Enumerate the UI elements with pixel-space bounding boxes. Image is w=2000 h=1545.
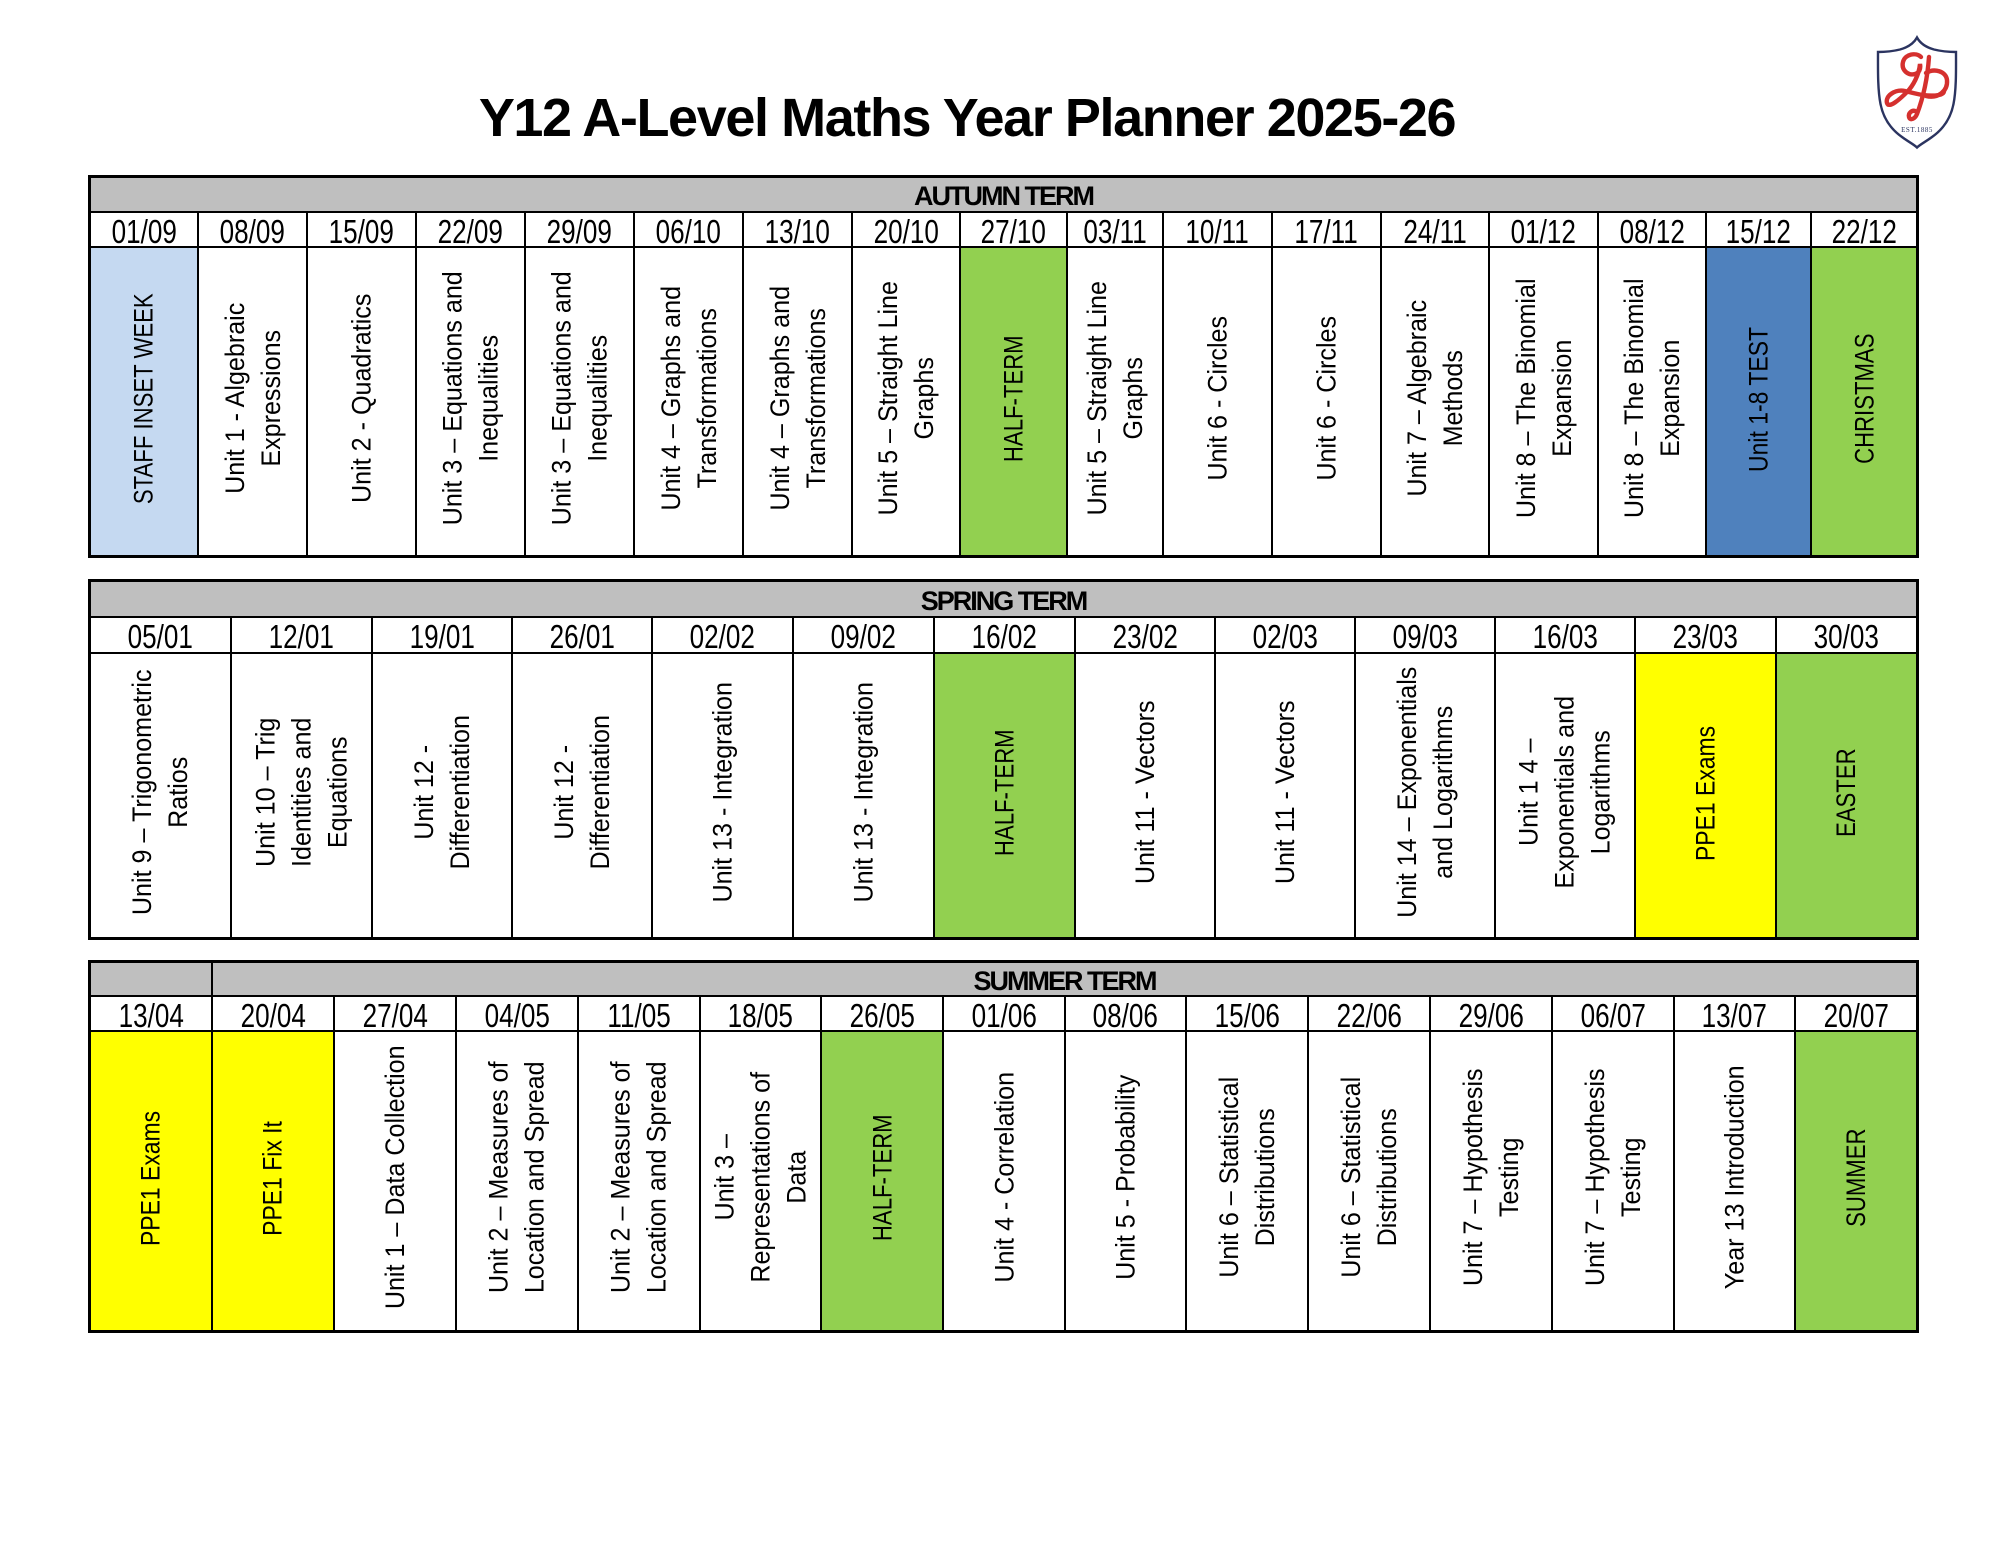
svg-text:EST.1885: EST.1885	[1901, 126, 1933, 134]
